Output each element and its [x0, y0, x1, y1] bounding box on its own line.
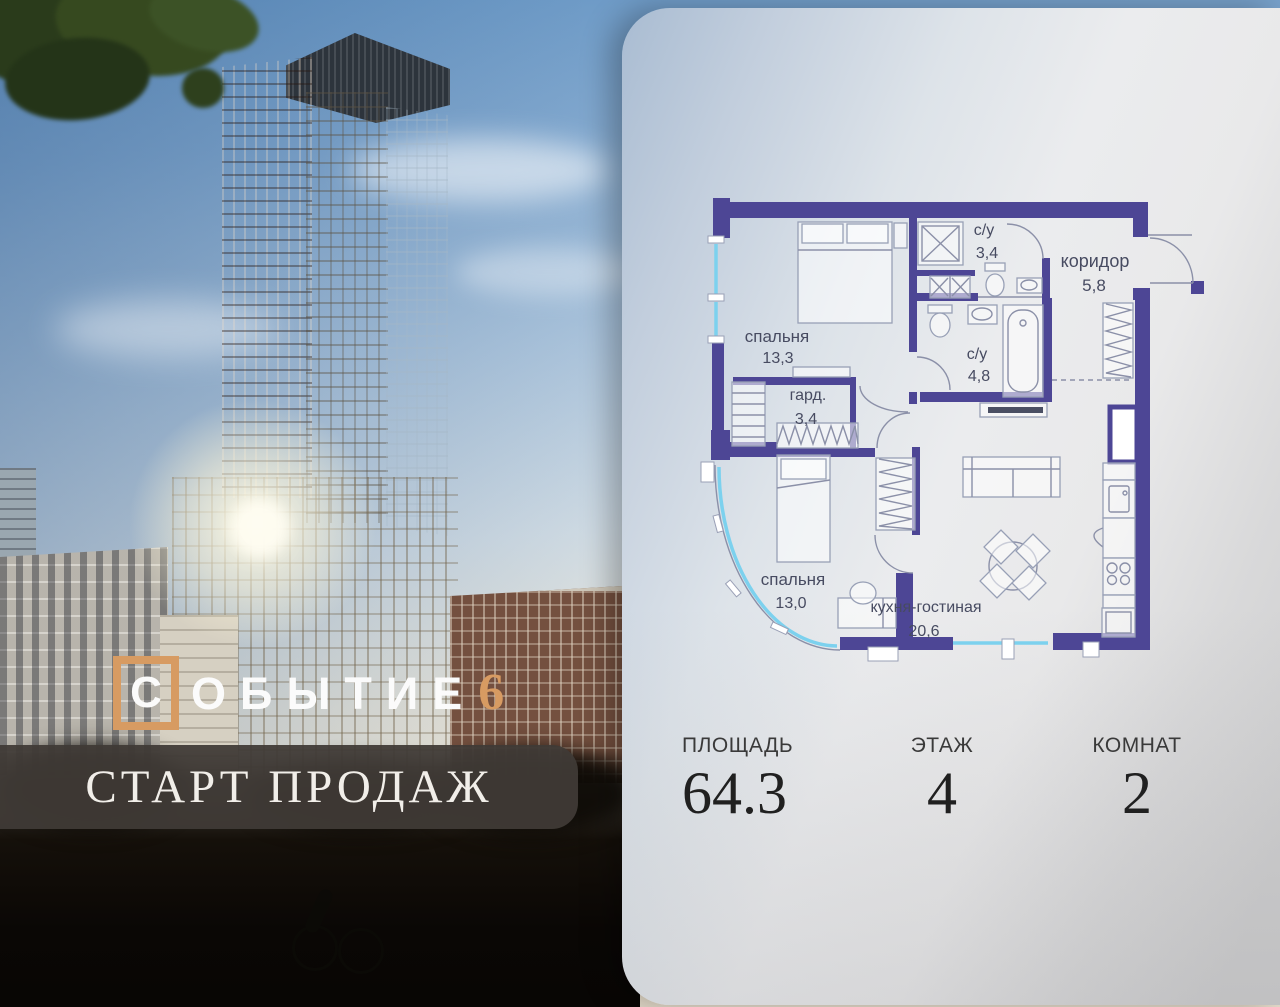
sales-start-text: СТАРТ ПРОДАЖ	[85, 760, 492, 814]
sales-start-banner: СТАРТ ПРОДАЖ	[0, 745, 578, 829]
room-label-bedroom1: спальня	[745, 327, 810, 346]
stat-area: ПЛОЩАДЬ 64.3	[682, 734, 793, 823]
stat-rooms-label: КОМНАТ	[1067, 734, 1207, 758]
room-area-bath2: 4,8	[968, 368, 990, 385]
stat-floor-value: 4	[872, 763, 1012, 823]
stat-floor: ЭТАЖ 4	[872, 734, 1012, 823]
logo-letters: ОБЫТИЕ	[191, 671, 476, 716]
room-area-kitchen-living: 20,6	[908, 623, 939, 640]
stat-area-label: ПЛОЩАДЬ	[682, 734, 793, 758]
stat-floor-label: ЭТАЖ	[872, 734, 1012, 758]
room-label-bath2: с/у	[967, 346, 987, 363]
room-area-corridor: 5,8	[1082, 276, 1106, 295]
room-label-bedroom2: спальня	[761, 570, 826, 589]
room-area-bath1: 3,4	[976, 245, 998, 262]
room-label-bath1: с/у	[974, 222, 994, 239]
floor-plan: спальня 13,3 с/у 3,4 коридор 5,8 с/у 4,8…	[685, 190, 1215, 670]
room-label-corridor: коридор	[1061, 251, 1130, 271]
logo-letter-c: С	[130, 671, 162, 715]
room-area-wardrobe: 3,4	[795, 411, 817, 428]
tower-glass-facade	[386, 107, 448, 536]
stat-area-value: 64.3	[682, 763, 793, 823]
tree-branch	[182, 68, 224, 108]
project-logo: С ОБЫТИЕ 6	[113, 656, 504, 730]
room-label-wardrobe: гард.	[790, 387, 827, 404]
logo-number: 6	[478, 667, 504, 719]
cyclist-silhouette	[338, 928, 384, 974]
stat-rooms: КОМНАТ 2	[1067, 734, 1207, 823]
room-label-kitchen-living: кухня-гостиная	[870, 599, 981, 616]
sun-glare-core	[230, 498, 290, 558]
room-area-bedroom1: 13,3	[762, 350, 793, 367]
vent-shaft	[1110, 407, 1137, 462]
stat-rooms-value: 2	[1067, 763, 1207, 823]
room-area-bedroom2: 13,0	[775, 595, 806, 612]
apartment-card: спальня 13,3 с/у 3,4 коридор 5,8 с/у 4,8…	[622, 8, 1280, 1005]
logo-frame: С	[113, 656, 179, 730]
cloud	[455, 248, 640, 296]
background-building	[0, 468, 36, 563]
